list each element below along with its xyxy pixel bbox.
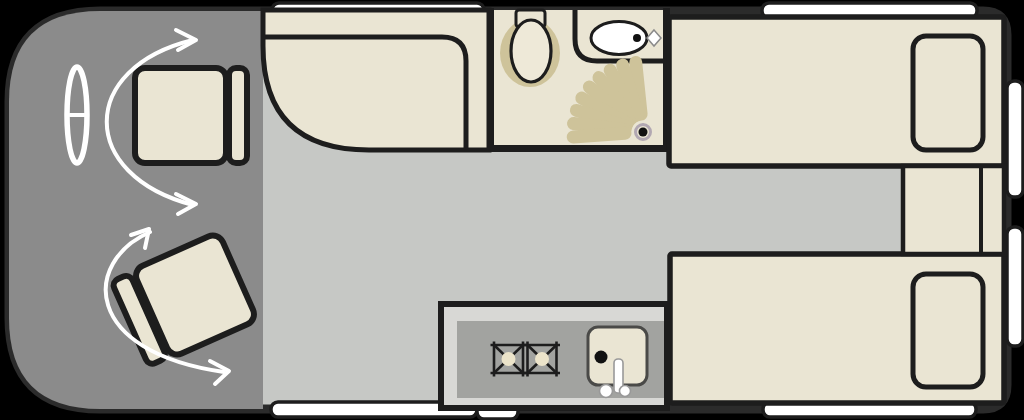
- cab-floor: [0, 0, 263, 420]
- floorplan-image: [0, 0, 1024, 420]
- spray-petal: [573, 133, 625, 137]
- faucet-handle: [600, 385, 613, 398]
- window-rear-upper: [1007, 81, 1023, 197]
- bathroom-wall-bottom: [487, 145, 670, 152]
- bathroom: [487, 8, 670, 152]
- pillow-top: [913, 36, 983, 150]
- burner-flame-center: [502, 352, 516, 366]
- bedside-cabinet: [903, 166, 1004, 254]
- sink-drain: [595, 351, 608, 364]
- bench-seat-outline: [263, 10, 489, 150]
- basin-drain: [633, 34, 641, 42]
- shower-drain: [639, 128, 648, 137]
- seat-cushion: [135, 68, 226, 163]
- burner-flame-center: [535, 352, 549, 366]
- window-rear-lower: [1007, 227, 1023, 346]
- seat-backrest: [229, 68, 247, 163]
- kitchen: [441, 304, 667, 408]
- driver-seat: [135, 68, 247, 163]
- lounge-bench: [263, 10, 489, 150]
- faucet-handle: [620, 386, 631, 397]
- pillow-bottom: [913, 274, 983, 387]
- bathroom-wall-left: [487, 8, 494, 151]
- toilet-bowl: [511, 20, 551, 82]
